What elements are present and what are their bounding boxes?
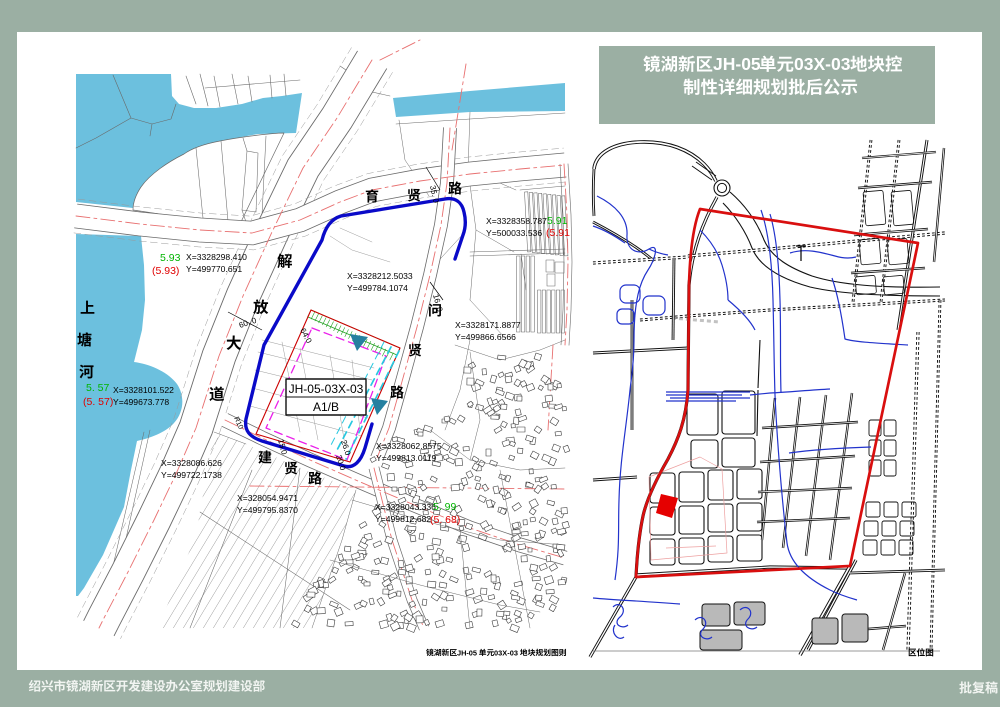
svg-text:X=3328101.522: X=3328101.522: [113, 385, 174, 395]
svg-text:Y=500033.536: Y=500033.536: [486, 228, 542, 238]
svg-text:X=3328086.626: X=3328086.626: [161, 458, 222, 468]
svg-text:Y=499795.8370: Y=499795.8370: [237, 505, 298, 515]
svg-text:(5. 68): (5. 68): [430, 514, 460, 526]
svg-text:Y=499866.6566: Y=499866.6566: [455, 332, 516, 342]
svg-text:Y=499784.1074: Y=499784.1074: [347, 283, 408, 293]
svg-text:(5. 57): (5. 57): [83, 396, 113, 408]
svg-text:X=3328171.8877: X=3328171.8877: [455, 320, 521, 330]
svg-text:Y=499673.778: Y=499673.778: [113, 397, 169, 407]
svg-text:JH-05-03X-03: JH-05-03X-03: [289, 382, 364, 396]
svg-text:03X-03: 03X-03: [494, 648, 518, 657]
svg-text:X=3328043.336: X=3328043.336: [375, 502, 436, 512]
svg-text:X=3328298.410: X=3328298.410: [186, 252, 247, 262]
svg-text:5. 99: 5. 99: [433, 501, 457, 513]
svg-text:5. 57: 5. 57: [86, 382, 110, 394]
svg-text:X=3328062.8575: X=3328062.8575: [376, 441, 442, 451]
svg-text:JH-05: JH-05: [457, 648, 477, 657]
svg-text:X=3328358.787: X=3328358.787: [486, 216, 547, 226]
svg-text:(5.91: (5.91: [546, 227, 570, 239]
svg-text:03X-03: 03X-03: [794, 54, 851, 74]
svg-text:(5.93): (5.93): [152, 265, 179, 277]
svg-text:JH-05: JH-05: [713, 54, 761, 74]
svg-text:Y=499813.0119: Y=499813.0119: [376, 453, 437, 463]
svg-text:5.93: 5.93: [160, 252, 181, 264]
svg-text:X=328054.9471: X=328054.9471: [237, 493, 298, 503]
svg-text:X=3328212.5033: X=3328212.5033: [347, 271, 413, 281]
svg-text:Y=499722.1738: Y=499722.1738: [161, 470, 222, 480]
svg-text:Y=499812.682: Y=499812.682: [375, 514, 431, 524]
svg-text:Y=499770.651: Y=499770.651: [186, 264, 242, 274]
svg-text:5.91: 5.91: [547, 215, 568, 227]
svg-text:A1/B: A1/B: [313, 400, 339, 414]
